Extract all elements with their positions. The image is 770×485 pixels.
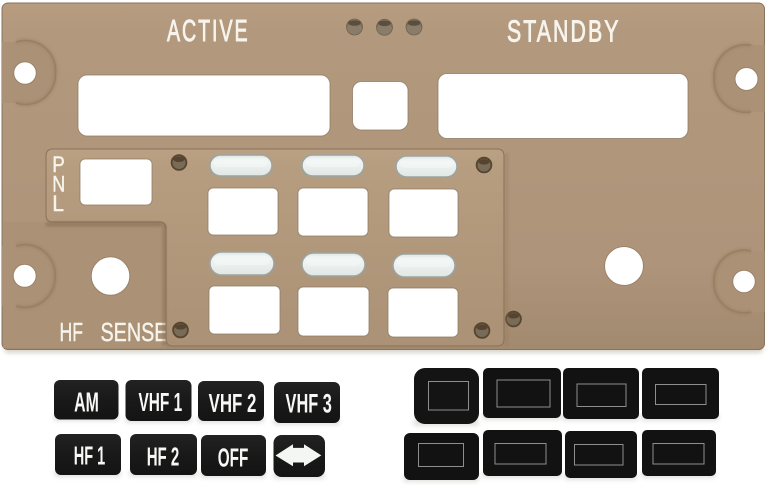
svg-text:HF 1: HF 1 [74, 441, 106, 471]
svg-text:VHF 1: VHF 1 [138, 387, 182, 417]
svg-text:L: L [52, 191, 64, 216]
svg-text:HF 2: HF 2 [147, 442, 180, 472]
svg-text:ACTIVE: ACTIVE [167, 14, 250, 48]
svg-text:OFF: OFF [218, 442, 249, 472]
svg-text:AM: AM [74, 387, 99, 418]
svg-text:SENSE: SENSE [101, 317, 168, 347]
svg-text:STANDBY: STANDBY [507, 14, 621, 48]
svg-text:HF: HF [60, 317, 84, 347]
svg-text:VHF 2: VHF 2 [209, 388, 257, 418]
svg-text:VHF 3: VHF 3 [286, 389, 332, 419]
